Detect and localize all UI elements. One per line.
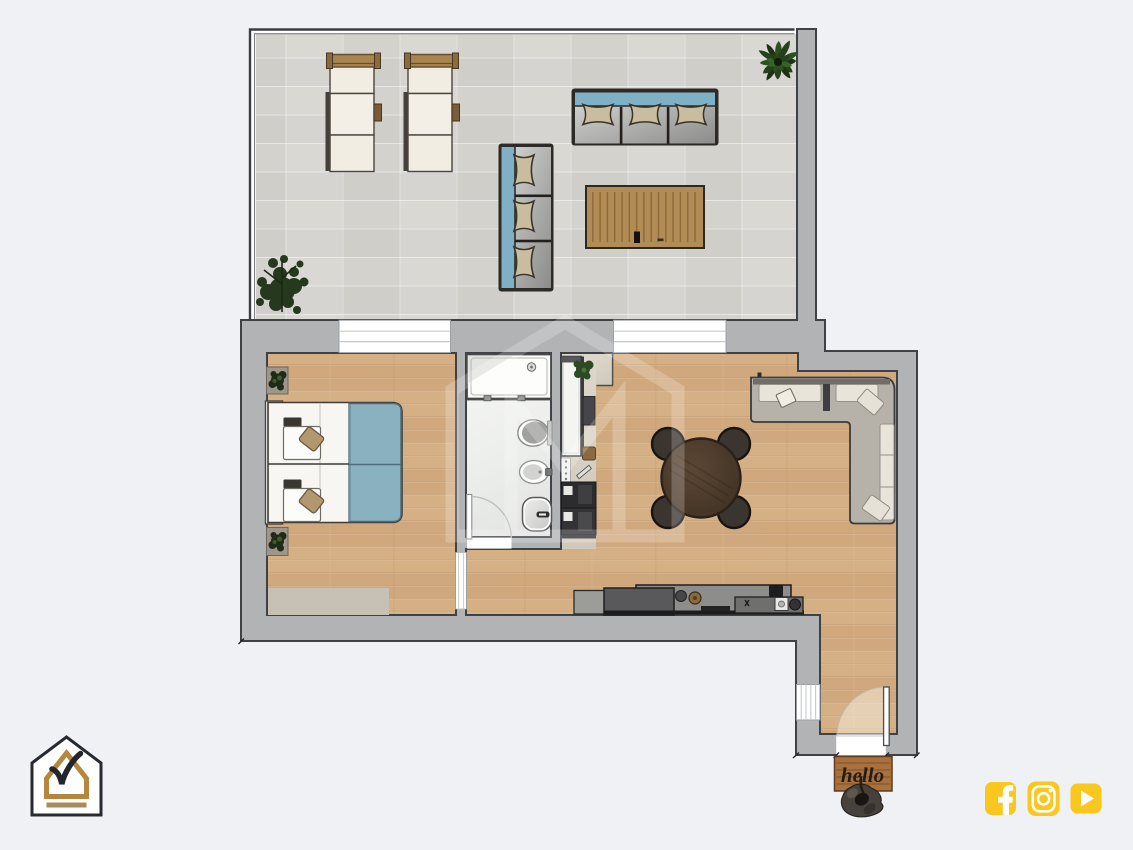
svg-text:hello: hello xyxy=(841,763,884,787)
